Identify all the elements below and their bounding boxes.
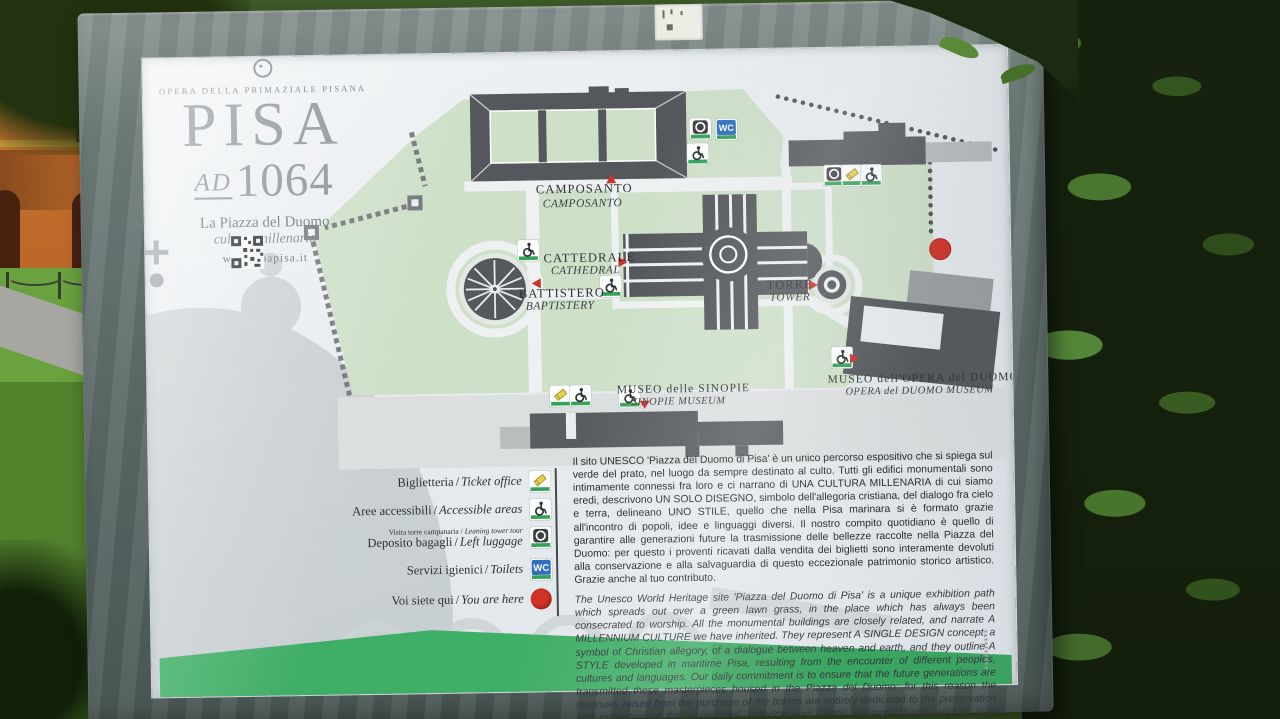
you-are-here-dot	[930, 238, 951, 259]
fence-post	[58, 272, 61, 299]
camposanto-label-it: CAMPOSANTO	[536, 181, 633, 197]
brand-year-line: AD1064	[150, 152, 379, 210]
sinopie-label-it: MUSEO delle SINOPIE	[617, 382, 751, 396]
legend-row-accessible-areas: Aree accessibili/Accessible areas	[299, 498, 551, 524]
qr-code	[230, 235, 265, 270]
legend-separator: /	[454, 535, 458, 549]
legend-row-toilets: Servizi igienici/Toilets WC	[300, 558, 552, 584]
wheelchair-icon	[569, 385, 591, 407]
brand-year: 1064	[235, 154, 334, 208]
building-doorway-arch	[0, 190, 20, 272]
legend-row-you-are-here: Voi siete qui/You are here	[301, 588, 553, 614]
battistero-label-it: BATTISTERO	[519, 285, 605, 300]
legend-label-en: Ticket office	[461, 474, 522, 489]
ticket-icon	[841, 164, 863, 186]
legend-label-en: You are here	[461, 592, 524, 607]
outdoor-photo-scene: WC	[0, 0, 1280, 719]
primaziale-logo-icon	[253, 59, 272, 78]
you-are-here-dot	[531, 588, 552, 609]
tower-tour-icon	[530, 526, 552, 548]
battistero-label-en: BAPTISTERY	[526, 300, 596, 313]
wheelchair-icon	[860, 164, 882, 186]
hedge-foliage	[1022, 0, 1280, 719]
printer-credit-vertical-text	[984, 630, 988, 670]
svg-text:WC: WC	[719, 123, 735, 133]
opera-label-en: OPERA del DUOMO MUSEUM	[845, 384, 994, 397]
ticket-icon	[529, 470, 551, 492]
information-board: WC	[77, 0, 1053, 719]
wheelchair-icon	[529, 498, 551, 520]
camposanto-building	[470, 91, 687, 181]
legend-row-left-luggage: Visita torre campanaria/Leaning tower to…	[300, 526, 552, 552]
legend: Biglietteria/Ticket office Aree accessib…	[299, 470, 553, 634]
wheelchair-icon	[687, 143, 709, 165]
legend-separator: /	[456, 593, 460, 607]
camposanto-label-en: CAMPOSANTO	[543, 197, 623, 210]
legend-label-it: Deposito bagagli	[367, 535, 452, 550]
svg-text:WC: WC	[533, 563, 549, 574]
legend-separator: /	[485, 562, 489, 576]
sinopie-label-en: SINOPIE MUSEUM	[632, 395, 727, 407]
brand-title: PISA	[149, 95, 378, 156]
brand-tagline-2: cultura millenaria	[151, 230, 379, 250]
info-texts: Il sito UNESCO 'Piazza del Duomo di Pisa…	[572, 449, 996, 719]
info-text-italian: Il sito UNESCO 'Piazza del Duomo di Pisa…	[572, 449, 994, 587]
legend-label-it: Aree accessibili	[352, 503, 432, 518]
torre-label-en: TOWER	[770, 291, 811, 304]
legend-row-ticket-office: Biglietteria/Ticket office	[299, 470, 551, 496]
frame-sticker	[654, 4, 703, 41]
wheelchair-icon	[831, 346, 853, 368]
legend-separator: /	[456, 475, 460, 489]
tower-tour-icon	[689, 118, 711, 140]
wc-icon: WC	[715, 118, 737, 140]
legend-label-en: Toilets	[490, 562, 523, 577]
legend-label-it: Biglietteria	[397, 475, 453, 490]
brand-ad: AD	[194, 169, 232, 200]
wheelchair-icon	[517, 239, 539, 261]
legend-label-en: Accessible areas	[439, 502, 522, 517]
map-dot-mark	[150, 273, 164, 287]
wc-icon: WC	[530, 558, 552, 580]
torre-label-it: TORRE	[767, 277, 813, 292]
north-buildings	[788, 121, 992, 166]
legend-label-en: Left luggage	[460, 534, 523, 549]
cattedrale-label-en: CATHEDRAL	[551, 264, 620, 277]
legend-label-it: Servizi igienici	[407, 562, 483, 577]
legend-separator: /	[434, 503, 438, 517]
info-text-english: The Unesco World Heritage site 'Piazza d…	[575, 587, 997, 719]
ticket-icon	[549, 385, 571, 407]
chain-fence	[6, 266, 64, 286]
map-panel: WC	[142, 45, 1017, 698]
legend-label-it: Voi siete qui	[391, 593, 453, 608]
cattedrale-label-it: CATTEDRALE	[543, 250, 635, 265]
